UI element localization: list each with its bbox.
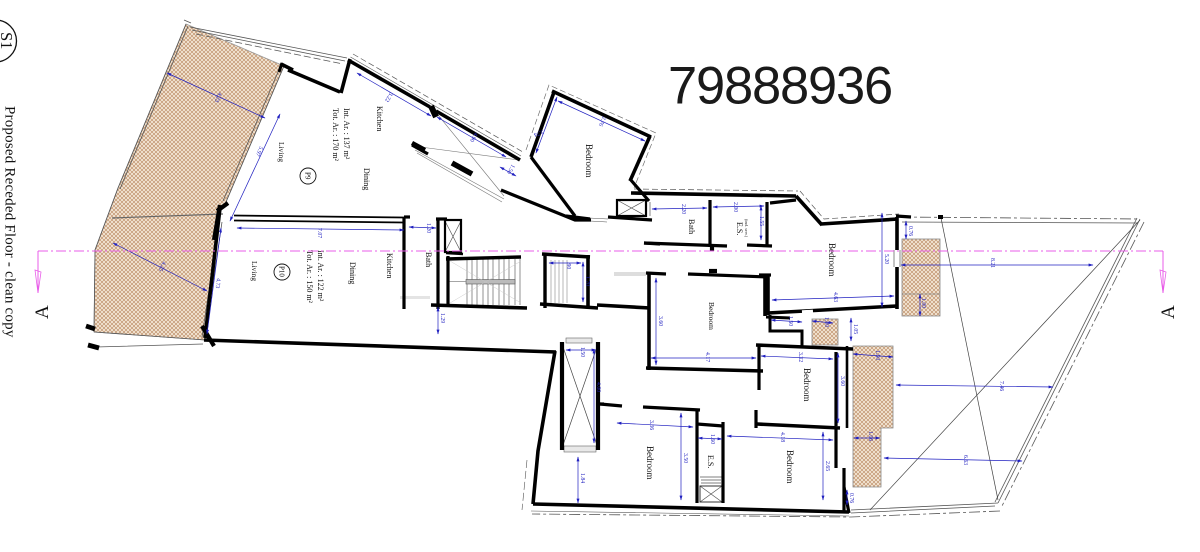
svg-text:0.76: 0.76 <box>848 493 854 503</box>
svg-text:Tot. Ar. : 170 m²: Tot. Ar. : 170 m² <box>331 108 340 162</box>
svg-text:4.17: 4.17 <box>704 352 710 362</box>
svg-text:0.76: 0.76 <box>907 226 913 236</box>
svg-text:4.73: 4.73 <box>214 278 221 289</box>
svg-text:A: A <box>1158 305 1179 319</box>
svg-text:1.50: 1.50 <box>874 350 880 360</box>
svg-text:4.18: 4.18 <box>779 432 785 442</box>
svg-text:3.60: 3.60 <box>657 316 663 326</box>
svg-text:2.00: 2.00 <box>732 202 738 212</box>
svg-text:1.06: 1.06 <box>867 431 873 441</box>
svg-text:Bedroom: Bedroom <box>785 450 795 484</box>
svg-text:Bedroom: Bedroom <box>827 243 837 277</box>
svg-text:Living: Living <box>250 261 259 281</box>
svg-text:1.29: 1.29 <box>439 313 445 323</box>
svg-text:P9: P9 <box>304 172 312 180</box>
svg-text:3.32: 3.32 <box>797 352 803 362</box>
svg-text:Kitchen: Kitchen <box>385 253 394 278</box>
svg-text:1.05: 1.05 <box>852 324 858 334</box>
svg-text:Bath: Bath <box>687 219 696 234</box>
svg-text:7.46: 7.46 <box>998 381 1004 391</box>
svg-text:Bedroom: Bedroom <box>584 144 594 178</box>
svg-text:Dining: Dining <box>348 262 357 284</box>
svg-text:Bath: Bath <box>424 252 433 267</box>
svg-text:A: A <box>32 305 53 319</box>
svg-text:2.65: 2.65 <box>824 461 830 471</box>
svg-text:(incl. serv.): (incl. serv.) <box>744 219 749 238</box>
svg-text:2.20: 2.20 <box>680 204 686 214</box>
svg-text:1.70: 1.70 <box>584 276 590 286</box>
svg-text:.90: .90 <box>565 262 571 269</box>
svg-text:E.S.: E.S. <box>735 222 744 235</box>
svg-text:E.S.: E.S. <box>706 455 715 468</box>
svg-text:S1: S1 <box>0 32 16 49</box>
svg-text:8.21: 8.21 <box>989 258 995 268</box>
svg-text:Bedroom: Bedroom <box>707 302 716 330</box>
svg-text:1.60: 1.60 <box>709 434 715 444</box>
svg-text:4.63: 4.63 <box>832 292 838 302</box>
svg-text:1.00: 1.00 <box>823 317 829 327</box>
svg-text:7.07: 7.07 <box>316 228 322 238</box>
svg-text:Kitchen: Kitchen <box>375 106 384 131</box>
svg-text:Bedroom: Bedroom <box>645 446 655 480</box>
svg-text:1.00: 1.00 <box>920 298 926 308</box>
svg-text:3.36: 3.36 <box>648 420 654 430</box>
svg-text:4.00: 4.00 <box>595 382 601 392</box>
svg-text:1.20: 1.20 <box>425 223 431 233</box>
svg-text:Proposed Receded Floor - clean: Proposed Receded Floor - clean copy <box>2 106 18 338</box>
svg-text:1.55: 1.55 <box>758 216 764 226</box>
svg-text:1.50: 1.50 <box>579 347 585 357</box>
svg-text:Int. Ar. : 137 m²: Int. Ar. : 137 m² <box>342 108 351 160</box>
svg-text:Bedroom: Bedroom <box>802 368 812 402</box>
svg-text:Int. Ar. : 122 m²: Int. Ar. : 122 m² <box>316 250 325 302</box>
svg-text:5.20: 5.20 <box>883 254 889 264</box>
svg-text:1.84: 1.84 <box>579 473 585 483</box>
svg-text:6.63: 6.63 <box>962 455 968 465</box>
svg-text:Living: Living <box>277 142 286 162</box>
svg-text:Tot. Ar. : 150 m²: Tot. Ar. : 150 m² <box>305 250 314 304</box>
svg-text:P10: P10 <box>278 266 286 277</box>
svg-text:79888936: 79888936 <box>668 57 892 116</box>
svg-text:3.50: 3.50 <box>682 453 688 463</box>
svg-text:3.60: 3.60 <box>839 376 845 386</box>
svg-text:Dining: Dining <box>362 168 371 190</box>
svg-text:1.50: 1.50 <box>787 316 793 326</box>
